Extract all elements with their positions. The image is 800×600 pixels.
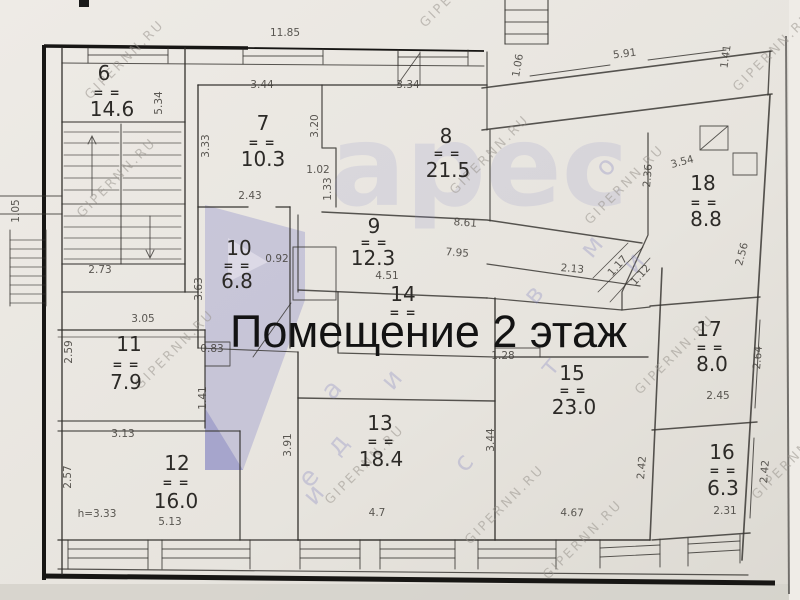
room-area: 7.9: [110, 370, 142, 394]
scanned-floor-plan-photo: аресGIPERNN.RUGIPERNN.RUGIPERNN.RUGIPERN…: [0, 0, 800, 600]
room-area: 8.0: [696, 352, 728, 376]
dimension-label: 3.05: [131, 313, 154, 325]
dimension-label: 4.67: [560, 507, 584, 520]
room-area: 21.5: [426, 158, 471, 182]
room-number: 7: [257, 111, 270, 135]
dimension-label: 3.91: [282, 433, 294, 456]
room-number: 11: [116, 332, 141, 356]
dimension-label: 2.31: [713, 505, 736, 517]
room-mark: = =: [162, 476, 189, 490]
room-area: 14.6: [90, 97, 135, 121]
dimension-label: 4.7: [369, 507, 386, 519]
dimension-label: 1.33: [322, 177, 334, 200]
dimension-label: 2.73: [88, 264, 111, 276]
room-area: 6.8: [221, 269, 253, 293]
dimension-label: 3.33: [200, 134, 212, 157]
dimension-label: 0.83: [200, 343, 223, 355]
dimension-label: 8.61: [453, 216, 477, 230]
dimension-label: 2.64: [751, 345, 765, 370]
dimension-label: h=3.33: [78, 508, 117, 520]
room-area: 16.0: [154, 489, 199, 513]
dimension-label: 5.34: [153, 91, 165, 115]
room-area: 6.3: [707, 476, 739, 500]
room-number: 16: [709, 440, 734, 464]
dimension-label: 2.42: [758, 460, 772, 484]
room-number: 12: [164, 451, 189, 475]
dimension-label: 5.13: [158, 516, 181, 528]
dimension-label: 3.44: [485, 428, 497, 452]
room-number: 15: [559, 361, 584, 385]
dimension-label: 2.13: [560, 262, 584, 276]
room-number: 13: [367, 411, 392, 435]
dimension-label: 1.05: [10, 199, 22, 222]
dimension-label: 4.51: [375, 270, 398, 282]
room-number: 10: [226, 236, 251, 260]
dimension-label: 3.63: [193, 277, 205, 300]
dimension-label: 3.20: [309, 114, 321, 137]
room-area: 23.0: [552, 395, 597, 419]
room-number: 18: [690, 171, 715, 195]
dimension-label: 3.44: [250, 79, 274, 91]
photo-bottom-edge: [0, 584, 800, 600]
dimension-label: 2.57: [62, 465, 74, 488]
room-number: 14: [390, 282, 415, 306]
dimension-label: 7.95: [445, 246, 469, 260]
room-area: 18.4: [359, 447, 404, 471]
room-number: 17: [696, 317, 721, 341]
room-number: 8: [440, 124, 453, 148]
dimension-label: 2.45: [706, 390, 729, 402]
dimension-label: 0.92: [265, 253, 288, 265]
room-area: 12.3: [351, 246, 396, 270]
dimension-label: 2.36: [641, 163, 655, 188]
dimension-label: 2.43: [238, 190, 261, 202]
photo-right-edge: [789, 0, 800, 600]
floor-plan: аресGIPERNN.RUGIPERNN.RUGIPERNN.RUGIPERN…: [0, 0, 800, 600]
room-area: 10.3: [241, 147, 286, 171]
room-number: 9: [368, 214, 381, 238]
room-number: 6: [98, 61, 111, 85]
dimension-label: 2.42: [635, 456, 649, 480]
dimension-label: 1.41: [197, 386, 209, 409]
dimension-label: 3.34: [396, 79, 420, 91]
dimension-label: 11.85: [270, 27, 300, 39]
floor-title-overlay: Помещение 2 этаж: [230, 306, 627, 357]
dimension-label: 1.02: [306, 164, 329, 176]
dimension-label: 3.13: [111, 428, 134, 440]
dimension-label: 2.59: [63, 340, 75, 363]
room-area: 8.8: [690, 207, 722, 231]
